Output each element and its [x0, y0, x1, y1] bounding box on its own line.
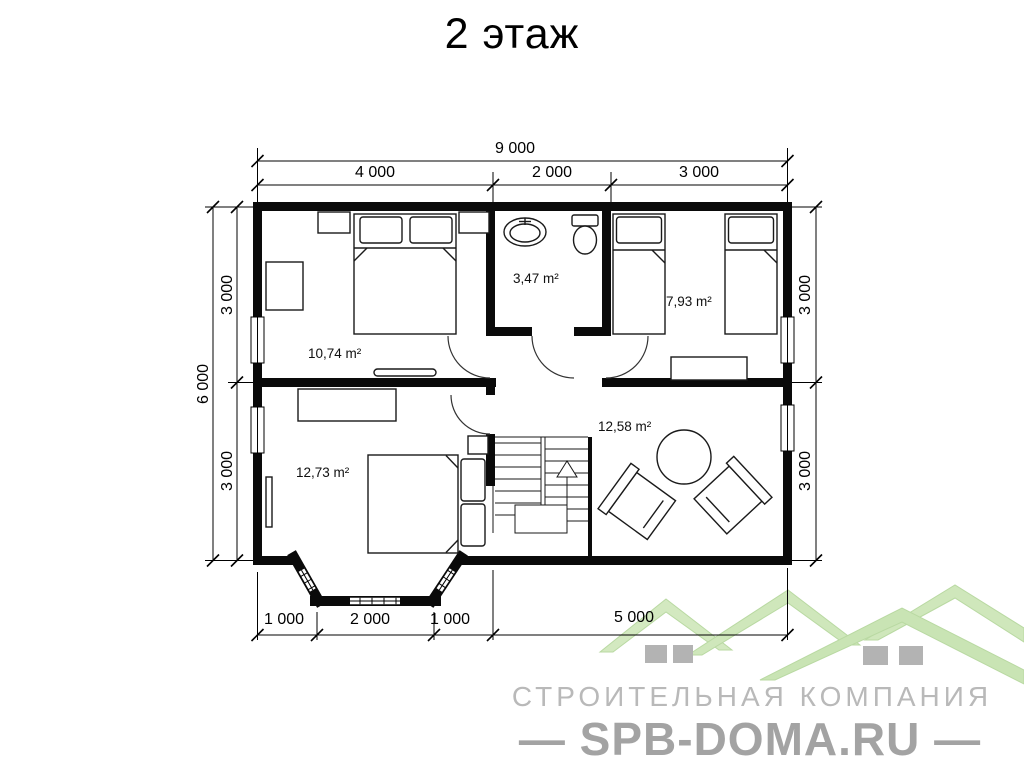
door-bathroom [532, 336, 574, 378]
wardrobe-top-left [266, 262, 303, 310]
stairs-arrow-head [557, 461, 577, 477]
floor-plan-page: 2 этаж 9 000 4 000 2 000 3 000 6 000 3 0… [0, 0, 1024, 768]
nightstand-bottom-left [468, 436, 488, 454]
dim-bottom-seg-3: 1 000 [430, 611, 470, 629]
stairs [493, 437, 588, 533]
wardrobe-bottom-left [298, 389, 396, 421]
area-label-bathroom: 3,47 m² [513, 271, 559, 286]
round-table [657, 430, 711, 484]
window-left-upper [251, 317, 264, 363]
area-label-bedroom-top-left: 10,74 m² [308, 346, 361, 361]
window-left-lower [251, 407, 264, 453]
double-bed-top-left [354, 214, 456, 334]
bay-window-bottom-glass [350, 598, 400, 604]
tv-top-left [374, 369, 436, 376]
window-right-lower [781, 405, 794, 451]
dim-top-seg-1: 4 000 [355, 164, 395, 182]
toilet [572, 215, 598, 254]
dim-bottom-seg-1: 1 000 [264, 611, 304, 629]
sink [504, 218, 546, 246]
page-title: 2 этаж [0, 10, 1024, 59]
single-bed-right [725, 214, 777, 334]
single-bed-left [613, 214, 665, 334]
window-right-upper [781, 317, 794, 363]
area-label-bedroom-top-right: 7,93 m² [666, 294, 712, 309]
dim-right-seg-2: 3 000 [797, 451, 815, 491]
area-label-bedroom-bottom-left: 12,73 m² [296, 465, 349, 480]
dim-top-total: 9 000 [495, 140, 535, 158]
floor-plan-drawing [0, 0, 1024, 768]
dim-left-total: 6 000 [195, 364, 213, 404]
area-label-living-hall: 12,58 m² [598, 419, 651, 434]
bay-window [294, 557, 461, 604]
tv-bottom-left [266, 477, 272, 527]
dim-top-seg-2: 2 000 [532, 164, 572, 182]
door-bedroom-top-left [448, 336, 490, 378]
double-bed-bottom-left [368, 455, 485, 553]
logo-house-windows [645, 645, 923, 665]
door-bedroom-bottom-left [451, 395, 490, 434]
brand-company-line: СТРОИТЕЛЬНАЯ КОМПАНИЯ [512, 681, 992, 713]
dresser-top-right [671, 357, 747, 380]
door-bedroom-top-right [606, 336, 648, 378]
dim-bottom-seg-2: 2 000 [350, 611, 390, 629]
dim-left-seg-1: 3 000 [219, 275, 237, 315]
dim-top-seg-3: 3 000 [679, 164, 719, 182]
brand-site-line: — SPB-DOMA.RU — [519, 712, 981, 766]
dim-bottom-seg-4: 5 000 [614, 609, 654, 627]
dim-right-seg-1: 3 000 [797, 275, 815, 315]
dim-left-seg-2: 3 000 [219, 451, 237, 491]
